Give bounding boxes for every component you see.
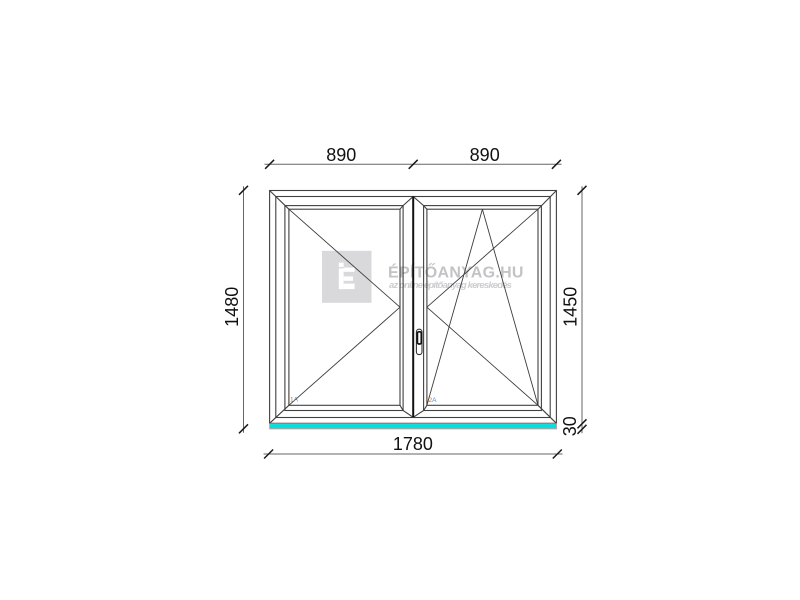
svg-text:1A: 1A [290,397,299,404]
svg-text:890: 890 [326,145,356,165]
svg-text:30: 30 [560,416,580,436]
svg-text:890: 890 [470,145,500,165]
svg-text:1450: 1450 [561,287,581,327]
svg-text:1480: 1480 [222,287,242,327]
svg-text:1780: 1780 [393,434,433,454]
svg-text:2A: 2A [429,397,438,404]
svg-text:az online építőanyag kereskedé: az online építőanyag kereskedés [389,280,512,291]
svg-text:ÉPÍTŐANYAG.HU: ÉPÍTŐANYAG.HU [388,263,524,282]
